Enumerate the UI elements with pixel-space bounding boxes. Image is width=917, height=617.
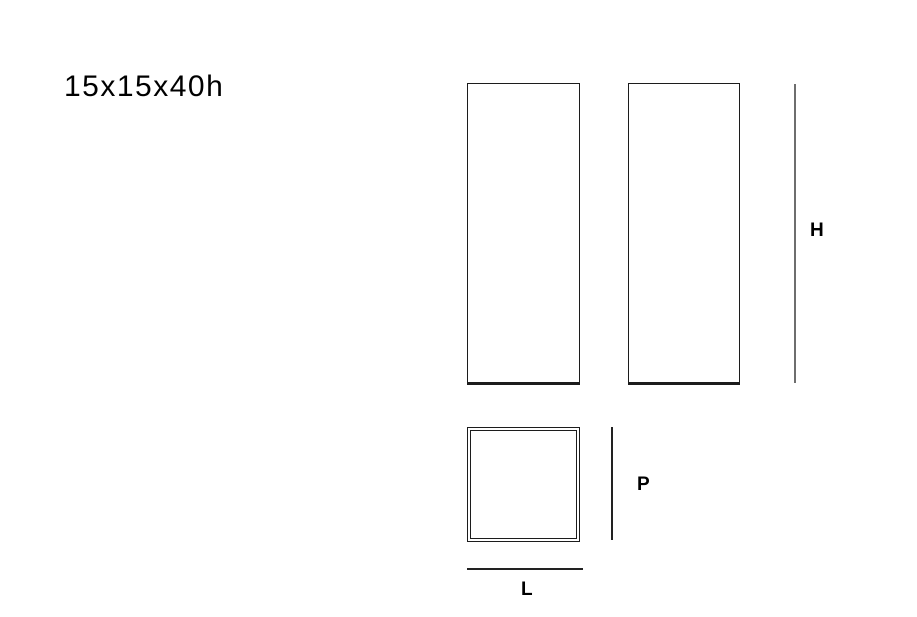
front-view-outline xyxy=(467,83,580,385)
side-view-foot-right xyxy=(721,382,728,385)
front-view-foot-right xyxy=(561,382,568,385)
front-view-foot-left xyxy=(479,382,486,385)
height-dimension-label: H xyxy=(810,219,824,244)
dimension-diagram: 15x15x40h H P L xyxy=(0,0,917,617)
side-view-outline xyxy=(628,83,740,385)
length-dimension-line xyxy=(467,568,583,570)
top-view-outline xyxy=(467,427,580,542)
depth-dimension-line xyxy=(611,427,613,540)
height-dimension-line xyxy=(794,84,796,383)
depth-dimension-label: P xyxy=(637,473,650,498)
top-view-inner-outline xyxy=(470,430,577,539)
length-dimension-label: L xyxy=(521,578,533,603)
page-title: 15x15x40h xyxy=(64,70,224,104)
side-view-foot-left xyxy=(640,382,647,385)
